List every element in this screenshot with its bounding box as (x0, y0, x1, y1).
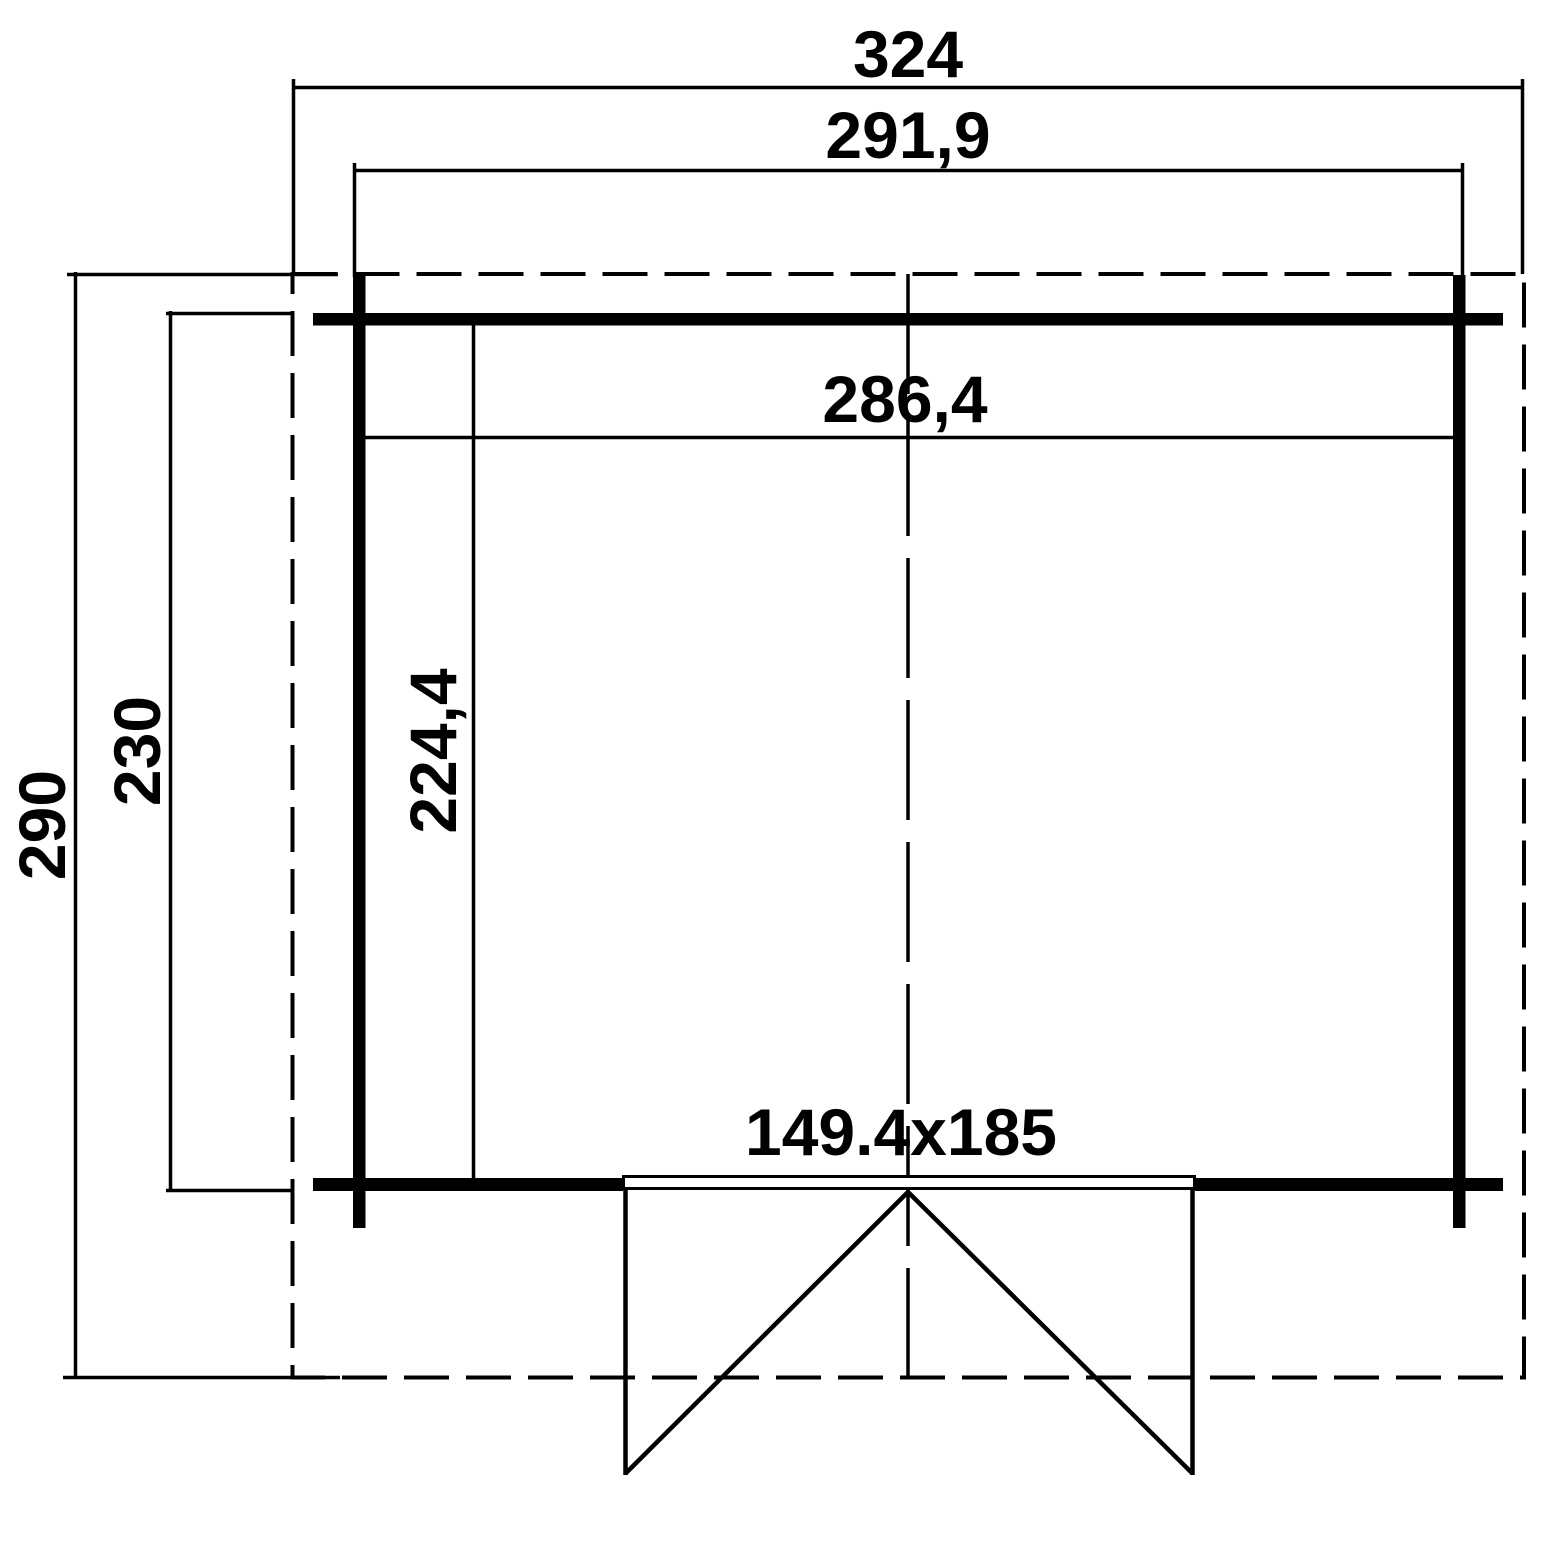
dim-line-wall-outer-width (353, 163, 1464, 277)
wall-top (313, 313, 1503, 326)
wall-bottom-right (1195, 1178, 1503, 1191)
door-sill (624, 1177, 1195, 1189)
dim-label-wall-outer-width: 291,9 (825, 102, 990, 168)
wall-left (353, 275, 366, 1228)
dim-label-wall-outer-depth: 230 (104, 696, 170, 806)
wall-right (1453, 275, 1466, 1228)
floor-plan-drawing (0, 0, 1565, 1541)
dim-line-overall-depth (63, 272, 340, 1378)
door-swing-right (908, 1192, 1192, 1473)
dim-label-inner-width: 286,4 (822, 366, 987, 432)
dim-label-overall-width: 324 (853, 21, 963, 87)
wall-bottom-left (313, 1178, 623, 1191)
dim-label-overall-depth: 290 (9, 770, 75, 880)
dim-line-wall-outer-depth (166, 311, 294, 1191)
floor-plan-canvas: 324 291,9 286,4 290 230 224,4 149.4x185 (0, 0, 1565, 1541)
dim-label-door-size: 149.4x185 (745, 1099, 1057, 1165)
dim-label-inner-depth: 224,4 (400, 668, 466, 833)
door-swing-left (626, 1192, 908, 1473)
